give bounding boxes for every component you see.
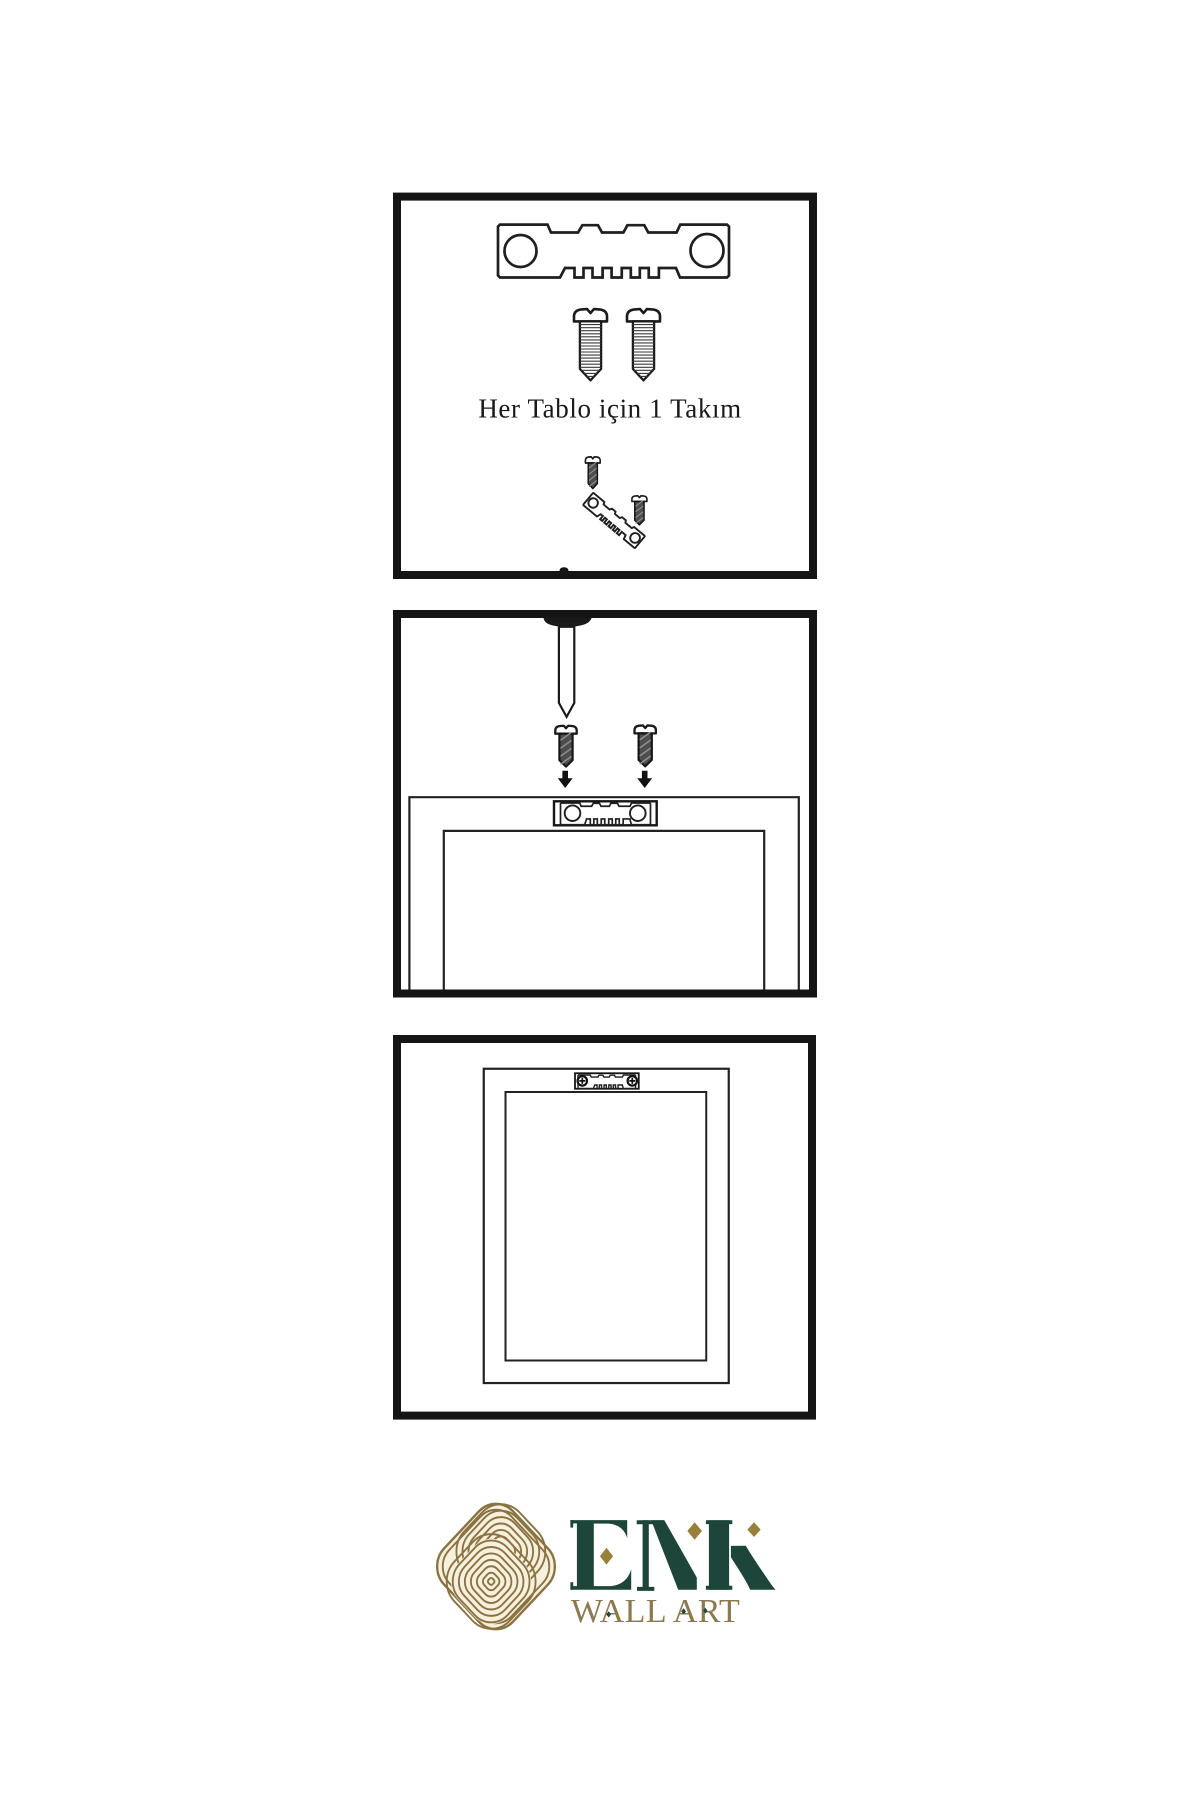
svg-text:Her Tablo için 1 Takım: Her Tablo için 1 Takım — [478, 394, 741, 424]
svg-text:WALL ART: WALL ART — [571, 1593, 740, 1630]
